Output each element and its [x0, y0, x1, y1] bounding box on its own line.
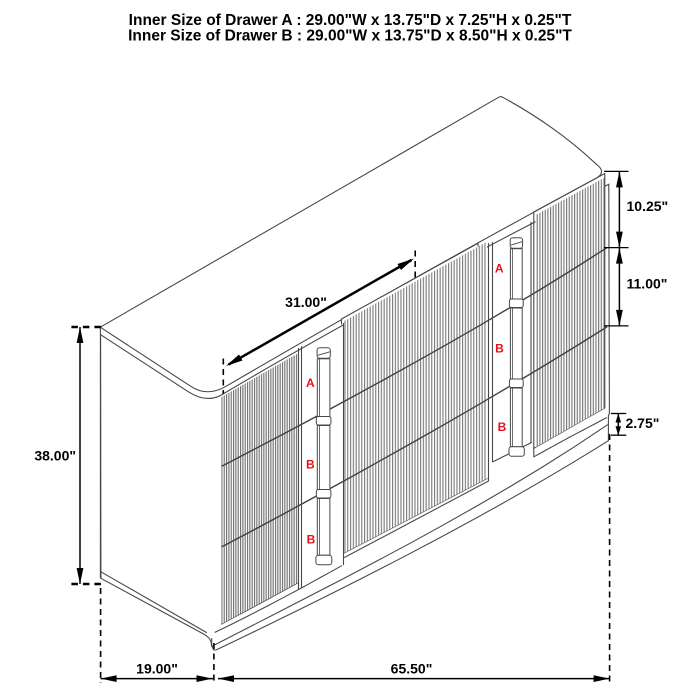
svg-text:Inner Size of Drawer B : 29.00: Inner Size of Drawer B : 29.00"W x 13.75… — [128, 28, 572, 45]
svg-text:11.00": 11.00" — [627, 276, 668, 292]
svg-text:19.00": 19.00" — [136, 661, 178, 677]
svg-text:B: B — [495, 342, 504, 356]
svg-text:65.50": 65.50" — [391, 661, 433, 677]
svg-text:10.25": 10.25" — [627, 198, 669, 214]
svg-text:Inner Size of Drawer A : 29.00: Inner Size of Drawer A : 29.00"W x 13.75… — [129, 12, 572, 29]
svg-text:2.75": 2.75" — [626, 415, 660, 431]
svg-text:B: B — [306, 458, 315, 472]
svg-text:31.00": 31.00" — [285, 294, 327, 310]
svg-text:B: B — [307, 533, 316, 547]
svg-text:A: A — [495, 262, 504, 276]
svg-text:B: B — [498, 420, 507, 434]
svg-text:A: A — [306, 376, 315, 390]
svg-text:38.00": 38.00" — [34, 448, 76, 464]
